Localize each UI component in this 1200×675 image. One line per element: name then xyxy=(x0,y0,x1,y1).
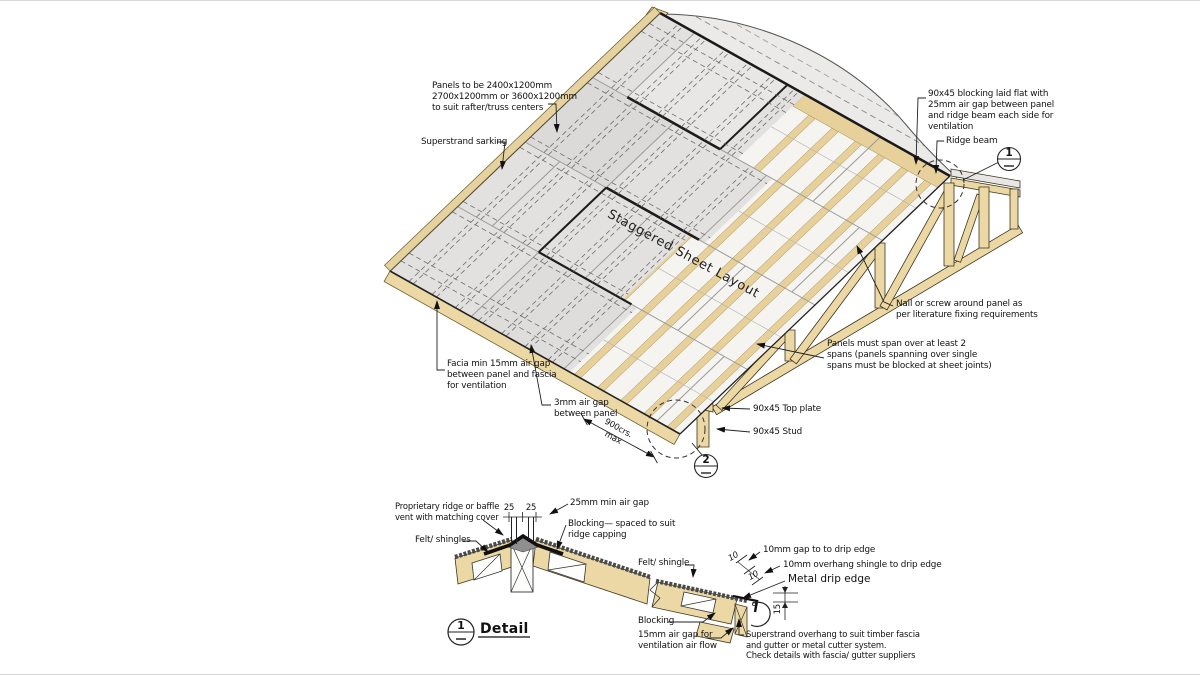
annotation-blocking: Blocking xyxy=(638,616,674,627)
annotation-ridge-beam: Ridge beam xyxy=(946,136,997,147)
annotation-felt-shingles: Felt/ shingles xyxy=(415,535,471,546)
annotation-blocking-spaced: Blocking— spaced to suit ridge capping xyxy=(568,519,675,541)
annotation-25mm-air-gap: 25mm min air gap xyxy=(570,498,649,509)
annotation-felt-shingle: Felt/ shingle xyxy=(638,558,689,569)
annotation-sarking: Superstrand sarking xyxy=(421,137,507,148)
annotation-10mm-overhang: 10mm overhang shingle to drip edge xyxy=(783,560,941,571)
annotation-stud: 90x45 Stud xyxy=(753,427,802,438)
dimension-15: 15 xyxy=(772,604,783,614)
detail-title: Detail xyxy=(480,621,529,637)
annotation-metal-drip-edge: Metal drip edge xyxy=(788,573,870,586)
annotation-superstrand-overhang: Superstrand overhang to suit timber fasc… xyxy=(746,629,920,661)
annotation-ridge-vent: Proprietary ridge or baffle vent with ma… xyxy=(395,501,499,522)
annotation-panel-sizes: Panels to be 2400x1200mm 2700x1200mm or … xyxy=(432,81,577,114)
annotation-10mm-gap: 10mm gap to to drip edge xyxy=(763,545,875,556)
truss-end-post xyxy=(1010,189,1018,229)
annotation-fascia-gap: Facia min 15mm air gap between panel and… xyxy=(447,359,557,392)
truss-web-vertical xyxy=(979,187,989,248)
annotation-15mm-air-gap: 15mm air gap for ventilation air flow xyxy=(638,630,717,652)
dimension-25-right: 25 xyxy=(523,502,539,513)
truss-web-vertical xyxy=(875,243,885,308)
vent-dimension xyxy=(503,512,542,522)
detail-title-marker-number: 1 xyxy=(449,619,473,632)
truss-king-post xyxy=(944,183,954,266)
drawing-canvas: Panels to be 2400x1200mm 2700x1200mm or … xyxy=(0,0,1200,675)
annotation-ridge-blocking: 90x45 blocking laid flat with 25mm air g… xyxy=(928,89,1054,133)
dim-15 xyxy=(773,586,798,620)
annotation-nail-screw: Nail or screw around panel as per litera… xyxy=(896,299,1038,321)
dimension-25-left: 25 xyxy=(501,502,517,513)
detail-marker-2-number: 2 xyxy=(694,454,718,466)
annotation-panel-span: Panels must span over at least 2 spans (… xyxy=(827,339,992,372)
detail-marker-1-number: 1 xyxy=(997,147,1021,159)
annotation-top-plate: 90x45 Top plate xyxy=(753,404,821,415)
